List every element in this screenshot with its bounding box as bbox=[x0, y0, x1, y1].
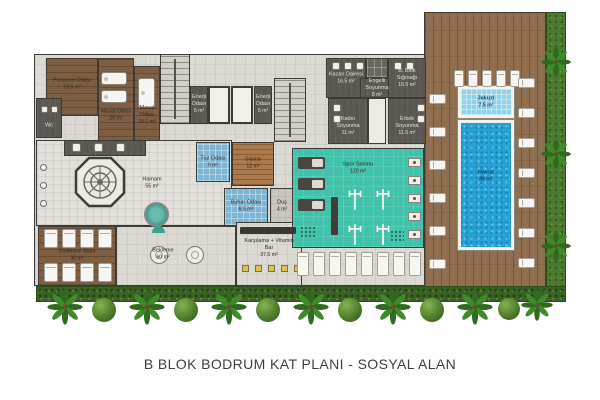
lounger-icon bbox=[345, 252, 357, 276]
lounger-h-icon bbox=[518, 138, 535, 148]
lounger-h-icon bbox=[429, 160, 446, 170]
enerji-odasi-1 bbox=[190, 86, 208, 124]
enerji-odasi-2 bbox=[254, 86, 272, 124]
stairwell-1 bbox=[160, 54, 190, 124]
lounger-icon bbox=[409, 252, 421, 276]
fixture-icon bbox=[94, 143, 103, 152]
lounger-h-icon bbox=[518, 198, 535, 208]
fixture-icon bbox=[51, 106, 58, 113]
treadmill-icon bbox=[298, 199, 325, 211]
wc bbox=[36, 98, 62, 138]
plan-title: B BLOK BODRUM KAT PLANI - SOSYAL ALAN bbox=[0, 356, 600, 372]
palm-tree-icon bbox=[540, 230, 572, 262]
fixture-icon bbox=[41, 106, 48, 113]
fixture-icon bbox=[333, 104, 341, 112]
fixture-icon bbox=[417, 115, 425, 123]
elevator-2 bbox=[231, 86, 253, 124]
lounger-icon bbox=[80, 263, 94, 282]
bar-stool-icon bbox=[242, 265, 249, 272]
lounger-icon bbox=[361, 252, 373, 276]
lounger-icon bbox=[44, 229, 58, 248]
lounger-icon bbox=[329, 252, 341, 276]
lounger-h-icon bbox=[429, 127, 446, 137]
lounger-h-icon bbox=[518, 228, 535, 238]
lounger-h-icon bbox=[429, 259, 446, 269]
machine-icon bbox=[408, 176, 421, 185]
lounger-icon bbox=[468, 70, 478, 87]
floor-plan-page: Personel Odası19.5 m²WcMasaj Odası20 m²M… bbox=[0, 0, 600, 400]
lounger-icon bbox=[496, 70, 506, 87]
lounger-icon bbox=[313, 252, 325, 276]
fixture-icon bbox=[406, 62, 414, 70]
massage-table-icon bbox=[101, 90, 127, 103]
sauna bbox=[232, 142, 274, 186]
dus bbox=[270, 188, 294, 226]
lounger-icon bbox=[482, 70, 492, 87]
machine-icon bbox=[408, 158, 421, 167]
rack-icon bbox=[331, 197, 338, 235]
mat-icon bbox=[300, 226, 316, 239]
palm-tree-icon bbox=[540, 138, 572, 170]
lounger-h-icon bbox=[518, 258, 535, 268]
lounger-h-icon bbox=[429, 226, 446, 236]
lounger-icon bbox=[62, 229, 76, 248]
machine-icon bbox=[408, 212, 421, 221]
fixture-icon bbox=[332, 62, 340, 70]
lounger-h-icon bbox=[518, 108, 535, 118]
bush-icon bbox=[498, 298, 520, 320]
machine-icon bbox=[408, 194, 421, 203]
buhar-odasi bbox=[224, 188, 268, 226]
treadmill-icon bbox=[298, 157, 325, 169]
round-table-icon bbox=[186, 246, 204, 264]
plant-icon bbox=[152, 226, 165, 233]
stairwell-2 bbox=[274, 78, 306, 142]
bekleme bbox=[116, 226, 236, 286]
havuz bbox=[458, 120, 514, 250]
round-table-icon bbox=[150, 246, 168, 264]
lounger-h-icon bbox=[429, 193, 446, 203]
bush-icon bbox=[92, 298, 116, 322]
barbell-icon bbox=[347, 186, 363, 213]
bar-counter-icon bbox=[240, 227, 296, 234]
lounger-icon bbox=[44, 263, 58, 282]
bar-stool-icon bbox=[281, 265, 288, 272]
bar-stool-icon bbox=[255, 265, 262, 272]
palm-tree-icon bbox=[456, 288, 494, 326]
barbell-icon bbox=[375, 186, 391, 213]
kurna-icon bbox=[40, 164, 47, 171]
lounger-icon bbox=[454, 70, 464, 87]
palm-tree-icon bbox=[540, 46, 572, 78]
machine-icon bbox=[408, 230, 421, 239]
fixture-icon bbox=[333, 115, 341, 123]
lounger-h-icon bbox=[518, 168, 535, 178]
lounger-icon bbox=[62, 263, 76, 282]
fixture-icon bbox=[72, 143, 81, 152]
treadmill-icon bbox=[298, 178, 325, 190]
lounger-icon bbox=[98, 263, 112, 282]
gobektasi-icon bbox=[74, 156, 126, 208]
lounger-icon bbox=[377, 252, 389, 276]
floor-plan: Personel Odası19.5 m²WcMasaj Odası20 m²M… bbox=[0, 0, 600, 400]
palm-tree-icon bbox=[520, 288, 554, 322]
fixture-icon bbox=[116, 143, 125, 152]
lounger-icon bbox=[393, 252, 405, 276]
bush-icon bbox=[256, 298, 280, 322]
fixture-icon bbox=[394, 62, 402, 70]
kurna-icon bbox=[40, 200, 47, 207]
kurna-icon bbox=[40, 182, 47, 189]
palm-tree-icon bbox=[46, 288, 84, 326]
bush-icon bbox=[338, 298, 362, 322]
mat-icon bbox=[390, 230, 404, 241]
fixture-icon bbox=[344, 62, 352, 70]
bar-stool-icon bbox=[268, 265, 275, 272]
bush-icon bbox=[174, 298, 198, 322]
bush-icon bbox=[420, 298, 444, 322]
lounger-h-icon bbox=[429, 94, 446, 104]
barbell-icon bbox=[375, 221, 391, 248]
fixture-icon bbox=[356, 62, 364, 70]
palm-tree-icon bbox=[374, 288, 412, 326]
soyunma-koridor bbox=[368, 98, 386, 144]
massage-table-icon bbox=[101, 72, 127, 85]
palm-tree-icon bbox=[210, 288, 248, 326]
lounger-icon bbox=[98, 229, 112, 248]
locker-bank bbox=[366, 58, 388, 78]
tuz-odasi bbox=[196, 142, 230, 182]
palm-tree-icon bbox=[128, 288, 166, 326]
hamam-jacuzzi-icon bbox=[144, 202, 169, 227]
lounger-icon bbox=[297, 252, 309, 276]
lounger-icon bbox=[80, 229, 94, 248]
elevator-1 bbox=[208, 86, 230, 124]
barbell-icon bbox=[347, 221, 363, 248]
lounger-h-icon bbox=[518, 78, 535, 88]
massage-table-icon bbox=[138, 78, 155, 108]
palm-tree-icon bbox=[292, 288, 330, 326]
jakuzi bbox=[458, 86, 514, 118]
fixture-icon bbox=[417, 104, 425, 112]
